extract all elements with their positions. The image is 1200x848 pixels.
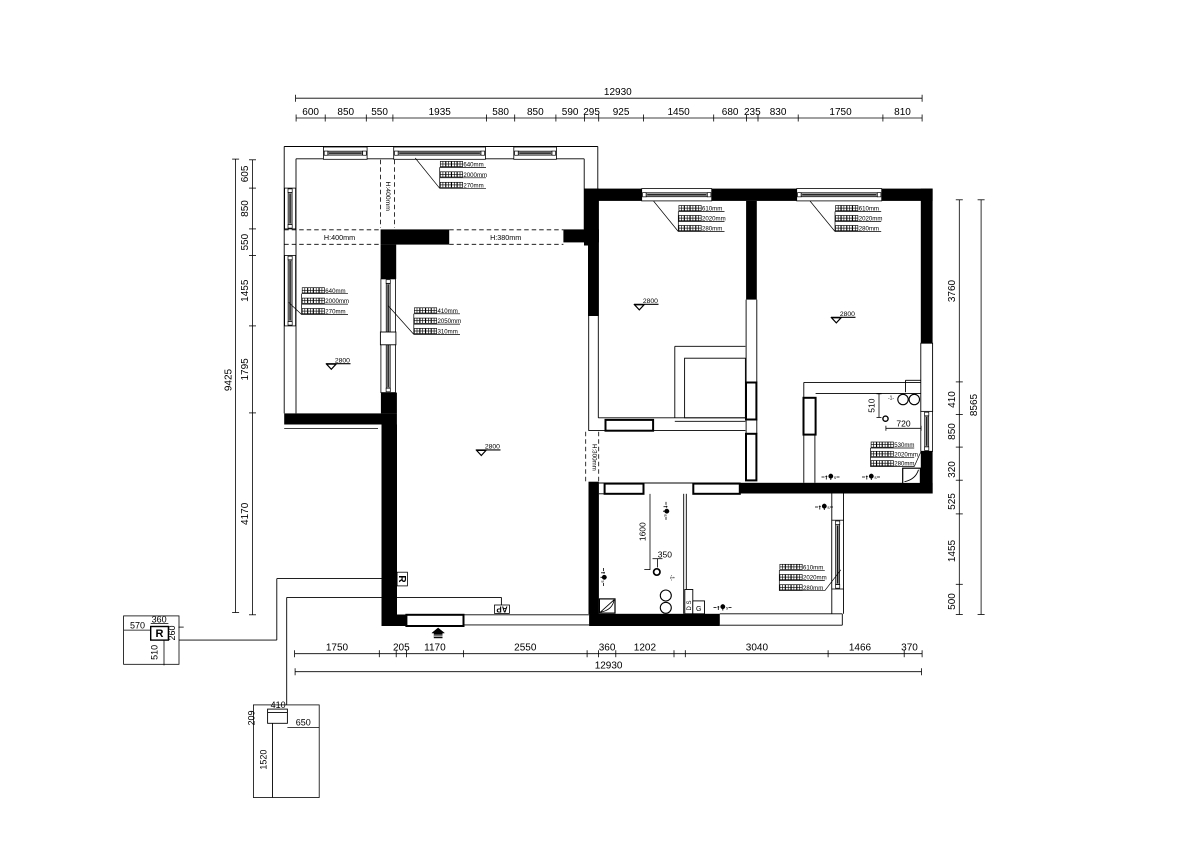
svg-text:3040: 3040 [746, 643, 769, 654]
svg-text:R: R [156, 628, 164, 640]
svg-text:1450: 1450 [667, 107, 690, 118]
svg-text:H:400mm: H:400mm [324, 233, 355, 242]
svg-text:235: 235 [744, 107, 761, 118]
svg-text:1170: 1170 [424, 643, 446, 654]
svg-text:360: 360 [152, 615, 167, 625]
svg-text:320: 320 [947, 461, 958, 478]
svg-text:G: G [696, 606, 701, 613]
svg-text:2800: 2800 [335, 358, 350, 365]
svg-text:850: 850 [527, 107, 544, 118]
svg-text:580: 580 [492, 107, 509, 118]
svg-text:370: 370 [901, 643, 918, 654]
svg-text:510: 510 [867, 398, 877, 412]
svg-text:AP: AP [496, 605, 508, 614]
svg-text:850: 850 [337, 107, 354, 118]
svg-text:H:380mm: H:380mm [490, 233, 521, 242]
svg-text:850: 850 [947, 423, 958, 440]
svg-text:605: 605 [240, 165, 251, 182]
svg-text:9425: 9425 [224, 368, 235, 391]
svg-text:260: 260 [167, 625, 177, 640]
svg-text:R: R [396, 575, 407, 583]
svg-text:525: 525 [947, 493, 958, 510]
svg-text:500: 500 [947, 593, 958, 610]
svg-text:-1-: -1- [669, 575, 675, 581]
svg-text:4170: 4170 [240, 502, 251, 525]
svg-text:925: 925 [613, 107, 630, 118]
svg-text:-1-: -1- [888, 396, 894, 402]
svg-text:1202: 1202 [634, 643, 657, 654]
svg-text:1935: 1935 [429, 107, 452, 118]
svg-text:410: 410 [947, 391, 958, 408]
svg-text:810: 810 [894, 107, 911, 118]
svg-text:12930: 12930 [604, 87, 632, 98]
svg-text:3760: 3760 [947, 279, 958, 302]
svg-text:2800: 2800 [643, 298, 658, 305]
svg-text:D S: D S [687, 600, 693, 610]
svg-text:1455: 1455 [240, 279, 251, 302]
svg-text:1600: 1600 [637, 522, 647, 541]
svg-text:295: 295 [583, 107, 600, 118]
svg-text:2800: 2800 [485, 444, 500, 451]
svg-text:1750: 1750 [326, 643, 349, 654]
svg-text:209: 209 [247, 710, 257, 725]
svg-text:830: 830 [770, 107, 787, 118]
svg-text:8565: 8565 [969, 393, 980, 416]
svg-text:1750: 1750 [829, 107, 852, 118]
svg-text:680: 680 [722, 107, 739, 118]
svg-text:1455: 1455 [947, 539, 958, 562]
svg-text:550: 550 [240, 233, 251, 250]
svg-text:1520: 1520 [259, 750, 269, 770]
svg-text:1466: 1466 [849, 643, 872, 654]
svg-text:720: 720 [896, 418, 910, 428]
svg-text:510: 510 [149, 645, 159, 660]
svg-text:360: 360 [599, 643, 616, 654]
svg-text:2800: 2800 [840, 311, 855, 318]
svg-text:12930: 12930 [595, 661, 623, 672]
svg-text:550: 550 [371, 107, 388, 118]
svg-text:570: 570 [130, 620, 145, 630]
svg-text:350: 350 [658, 549, 672, 559]
svg-text:205: 205 [393, 643, 410, 654]
svg-text:H:400mm: H:400mm [384, 182, 391, 212]
svg-text:H:300mm: H:300mm [590, 444, 597, 471]
svg-text:410: 410 [271, 700, 286, 710]
svg-text:600: 600 [302, 107, 319, 118]
svg-text:590: 590 [562, 107, 579, 118]
svg-text:2550: 2550 [514, 643, 537, 654]
svg-text:650: 650 [296, 718, 311, 728]
svg-text:1795: 1795 [240, 358, 251, 381]
svg-text:850: 850 [240, 200, 251, 217]
